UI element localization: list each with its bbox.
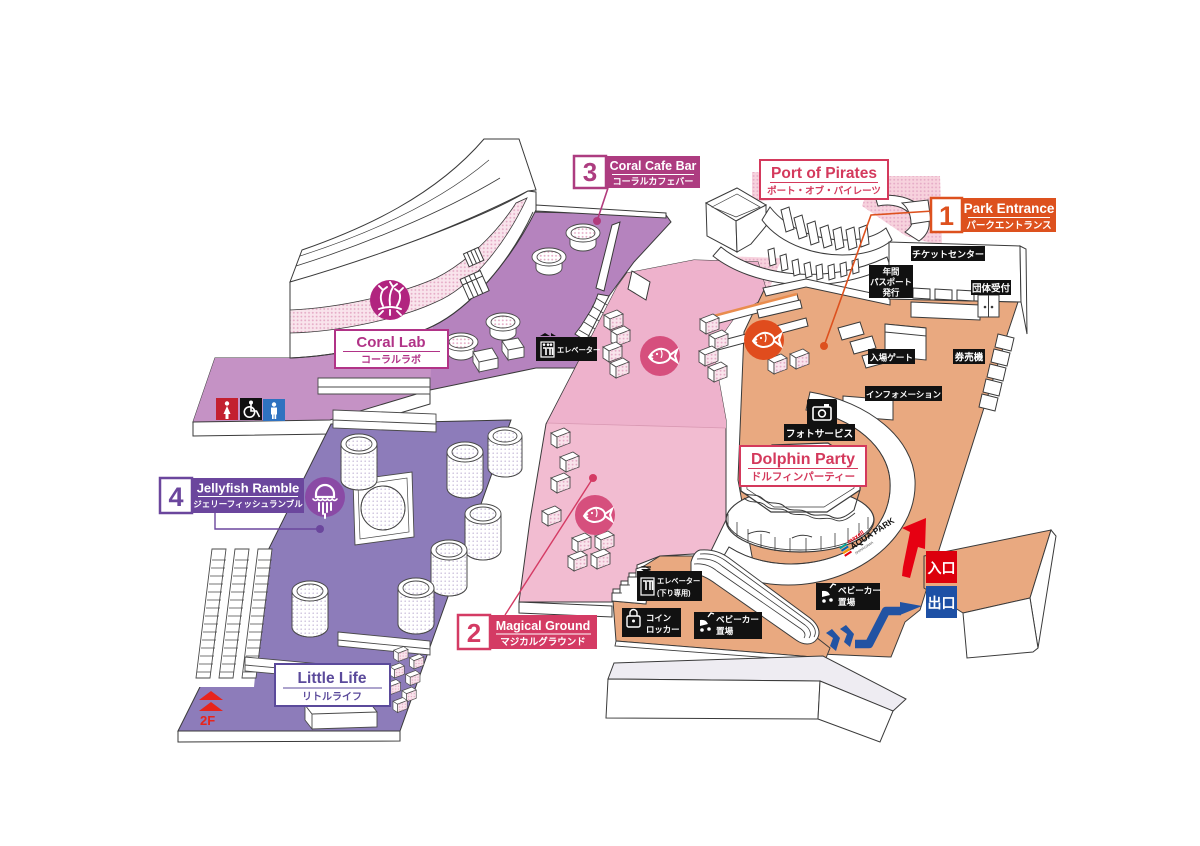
svg-text:チケットセンター: チケットセンター <box>912 249 984 260</box>
svg-text:Magical Ground: Magical Ground <box>496 619 590 633</box>
svg-text:インフォメーション: インフォメーション <box>866 390 941 400</box>
svg-text:3: 3 <box>583 157 597 187</box>
svg-text:エレベーター: エレベーター <box>657 577 700 586</box>
svg-text:置場: 置場 <box>838 596 856 607</box>
svg-text:パークエントランス: パークエントランス <box>966 220 1051 232</box>
svg-text:Coral Lab: Coral Lab <box>356 334 425 351</box>
svg-text:入場ゲート: 入場ゲート <box>870 352 913 363</box>
svg-text:Little Life: Little Life <box>298 670 367 687</box>
svg-text:コイン: コイン <box>646 613 671 623</box>
svg-text:コーラルラボ: コーラルラボ <box>361 353 421 366</box>
svg-text:ジェリーフィッシュランブル: ジェリーフィッシュランブル <box>193 499 303 509</box>
svg-text:ベビーカー: ベビーカー <box>838 585 881 596</box>
svg-text:Dolphin Party: Dolphin Party <box>751 451 855 468</box>
svg-text:2: 2 <box>467 618 481 648</box>
svg-text:1: 1 <box>939 201 954 231</box>
svg-text:パスポート: パスポート <box>870 277 912 287</box>
svg-text:フォトサービス: フォトサービス <box>786 428 853 440</box>
svg-text:ベビーカー: ベビーカー <box>716 614 759 625</box>
svg-text:年間: 年間 <box>883 267 900 277</box>
svg-text:Park Entrance: Park Entrance <box>964 201 1055 216</box>
svg-text:Port of Pirates: Port of Pirates <box>771 165 877 182</box>
svg-text:出口: 出口 <box>928 595 956 611</box>
svg-text:ドルフィンパーティー: ドルフィンパーティー <box>751 471 855 483</box>
svg-text:入口: 入口 <box>928 560 956 576</box>
svg-text:ロッカー: ロッカー <box>646 625 680 635</box>
svg-text:団体受付: 団体受付 <box>972 283 1011 295</box>
svg-text:マジカルグラウンド: マジカルグラウンド <box>500 636 586 648</box>
svg-text:(下り専用): (下り専用) <box>657 589 691 598</box>
svg-text:エレベーター: エレベーター <box>557 346 600 355</box>
svg-text:Coral Cafe Bar: Coral Cafe Bar <box>610 159 697 173</box>
svg-text:発行: 発行 <box>882 288 900 298</box>
svg-text:4: 4 <box>168 482 183 512</box>
svg-text:リトルライフ: リトルライフ <box>302 691 362 703</box>
svg-text:券売機: 券売機 <box>954 352 984 364</box>
svg-text:置場: 置場 <box>716 625 734 636</box>
svg-text:Jellyfish Ramble: Jellyfish Ramble <box>197 481 300 496</box>
svg-text:2F: 2F <box>200 713 215 728</box>
svg-text:コーラルカフェバー: コーラルカフェバー <box>613 177 694 187</box>
svg-text:ポート・オブ・パイレーツ: ポート・オブ・パイレーツ <box>767 185 881 197</box>
